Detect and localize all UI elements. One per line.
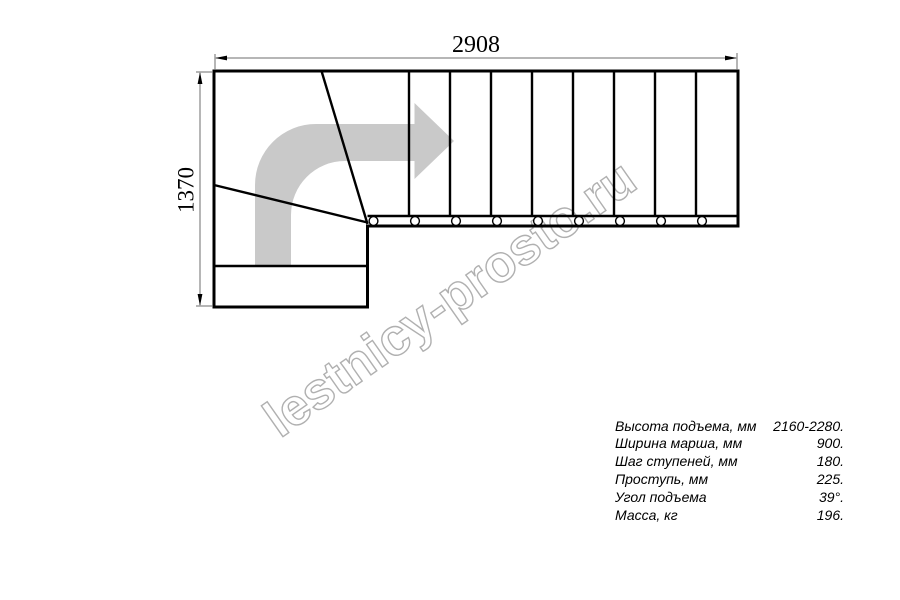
- svg-text:2908: 2908: [452, 32, 500, 58]
- svg-text:1370: 1370: [174, 167, 199, 213]
